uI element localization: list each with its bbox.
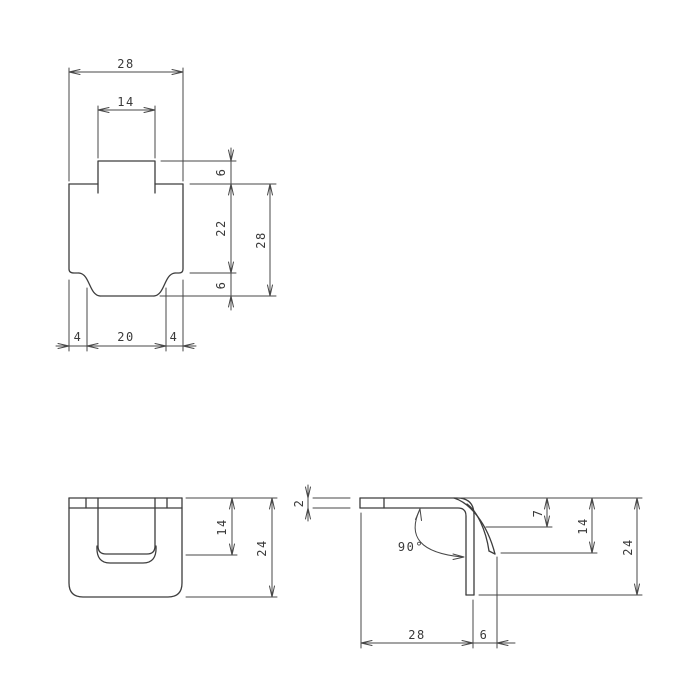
dim-label-flat-overall-height: 28 [254, 231, 268, 248]
dim-label-flat-tab-width: 14 [117, 95, 134, 109]
flat-pattern-view: 28 14 6 22 28 6 4 20 4 [56, 57, 276, 351]
dim-label-side-height: 24 [621, 538, 635, 555]
dim-label-flat-bottom-right-inset: 4 [170, 330, 179, 344]
dim-label-side-tab-protrusion: 6 [480, 628, 489, 642]
side-view-outline [360, 498, 495, 595]
dim-label-side-tab-tip-depth: 14 [576, 517, 590, 534]
dim-label-flat-lower-height: 6 [214, 281, 228, 290]
flat-pattern-outline [69, 161, 183, 296]
dim-label-flat-top-width: 28 [117, 57, 134, 71]
dim-label-side-tab-drop: 7 [531, 509, 545, 518]
technical-drawing: 28 14 6 22 28 6 4 20 4 [0, 0, 700, 700]
front-view-labels: 14 24 [215, 518, 269, 556]
drawing-sheet: 28 14 6 22 28 6 4 20 4 [0, 0, 700, 700]
front-view: 14 24 [69, 498, 277, 597]
dim-label-front-tab-depth: 14 [215, 518, 229, 535]
dim-label-side-leg-length: 28 [408, 628, 425, 642]
side-view: 2 90° 7 14 24 28 6 [292, 485, 642, 648]
dim-label-flat-upper-height: 22 [214, 219, 228, 236]
dim-label-side-thickness: 2 [292, 499, 306, 508]
side-view-labels: 2 90° 7 14 24 28 6 [292, 499, 635, 642]
flat-pattern-dimensions [56, 68, 276, 351]
dim-label-front-height: 24 [255, 539, 269, 556]
dim-label-side-bend-angle: 90° [398, 540, 424, 554]
dim-label-flat-bottom-width: 20 [117, 330, 134, 344]
flat-pattern-labels: 28 14 6 22 28 6 4 20 4 [74, 57, 268, 344]
dim-label-flat-tab-height: 6 [214, 168, 228, 177]
dim-label-flat-bottom-left-inset: 4 [74, 330, 83, 344]
front-view-outline [69, 498, 182, 597]
